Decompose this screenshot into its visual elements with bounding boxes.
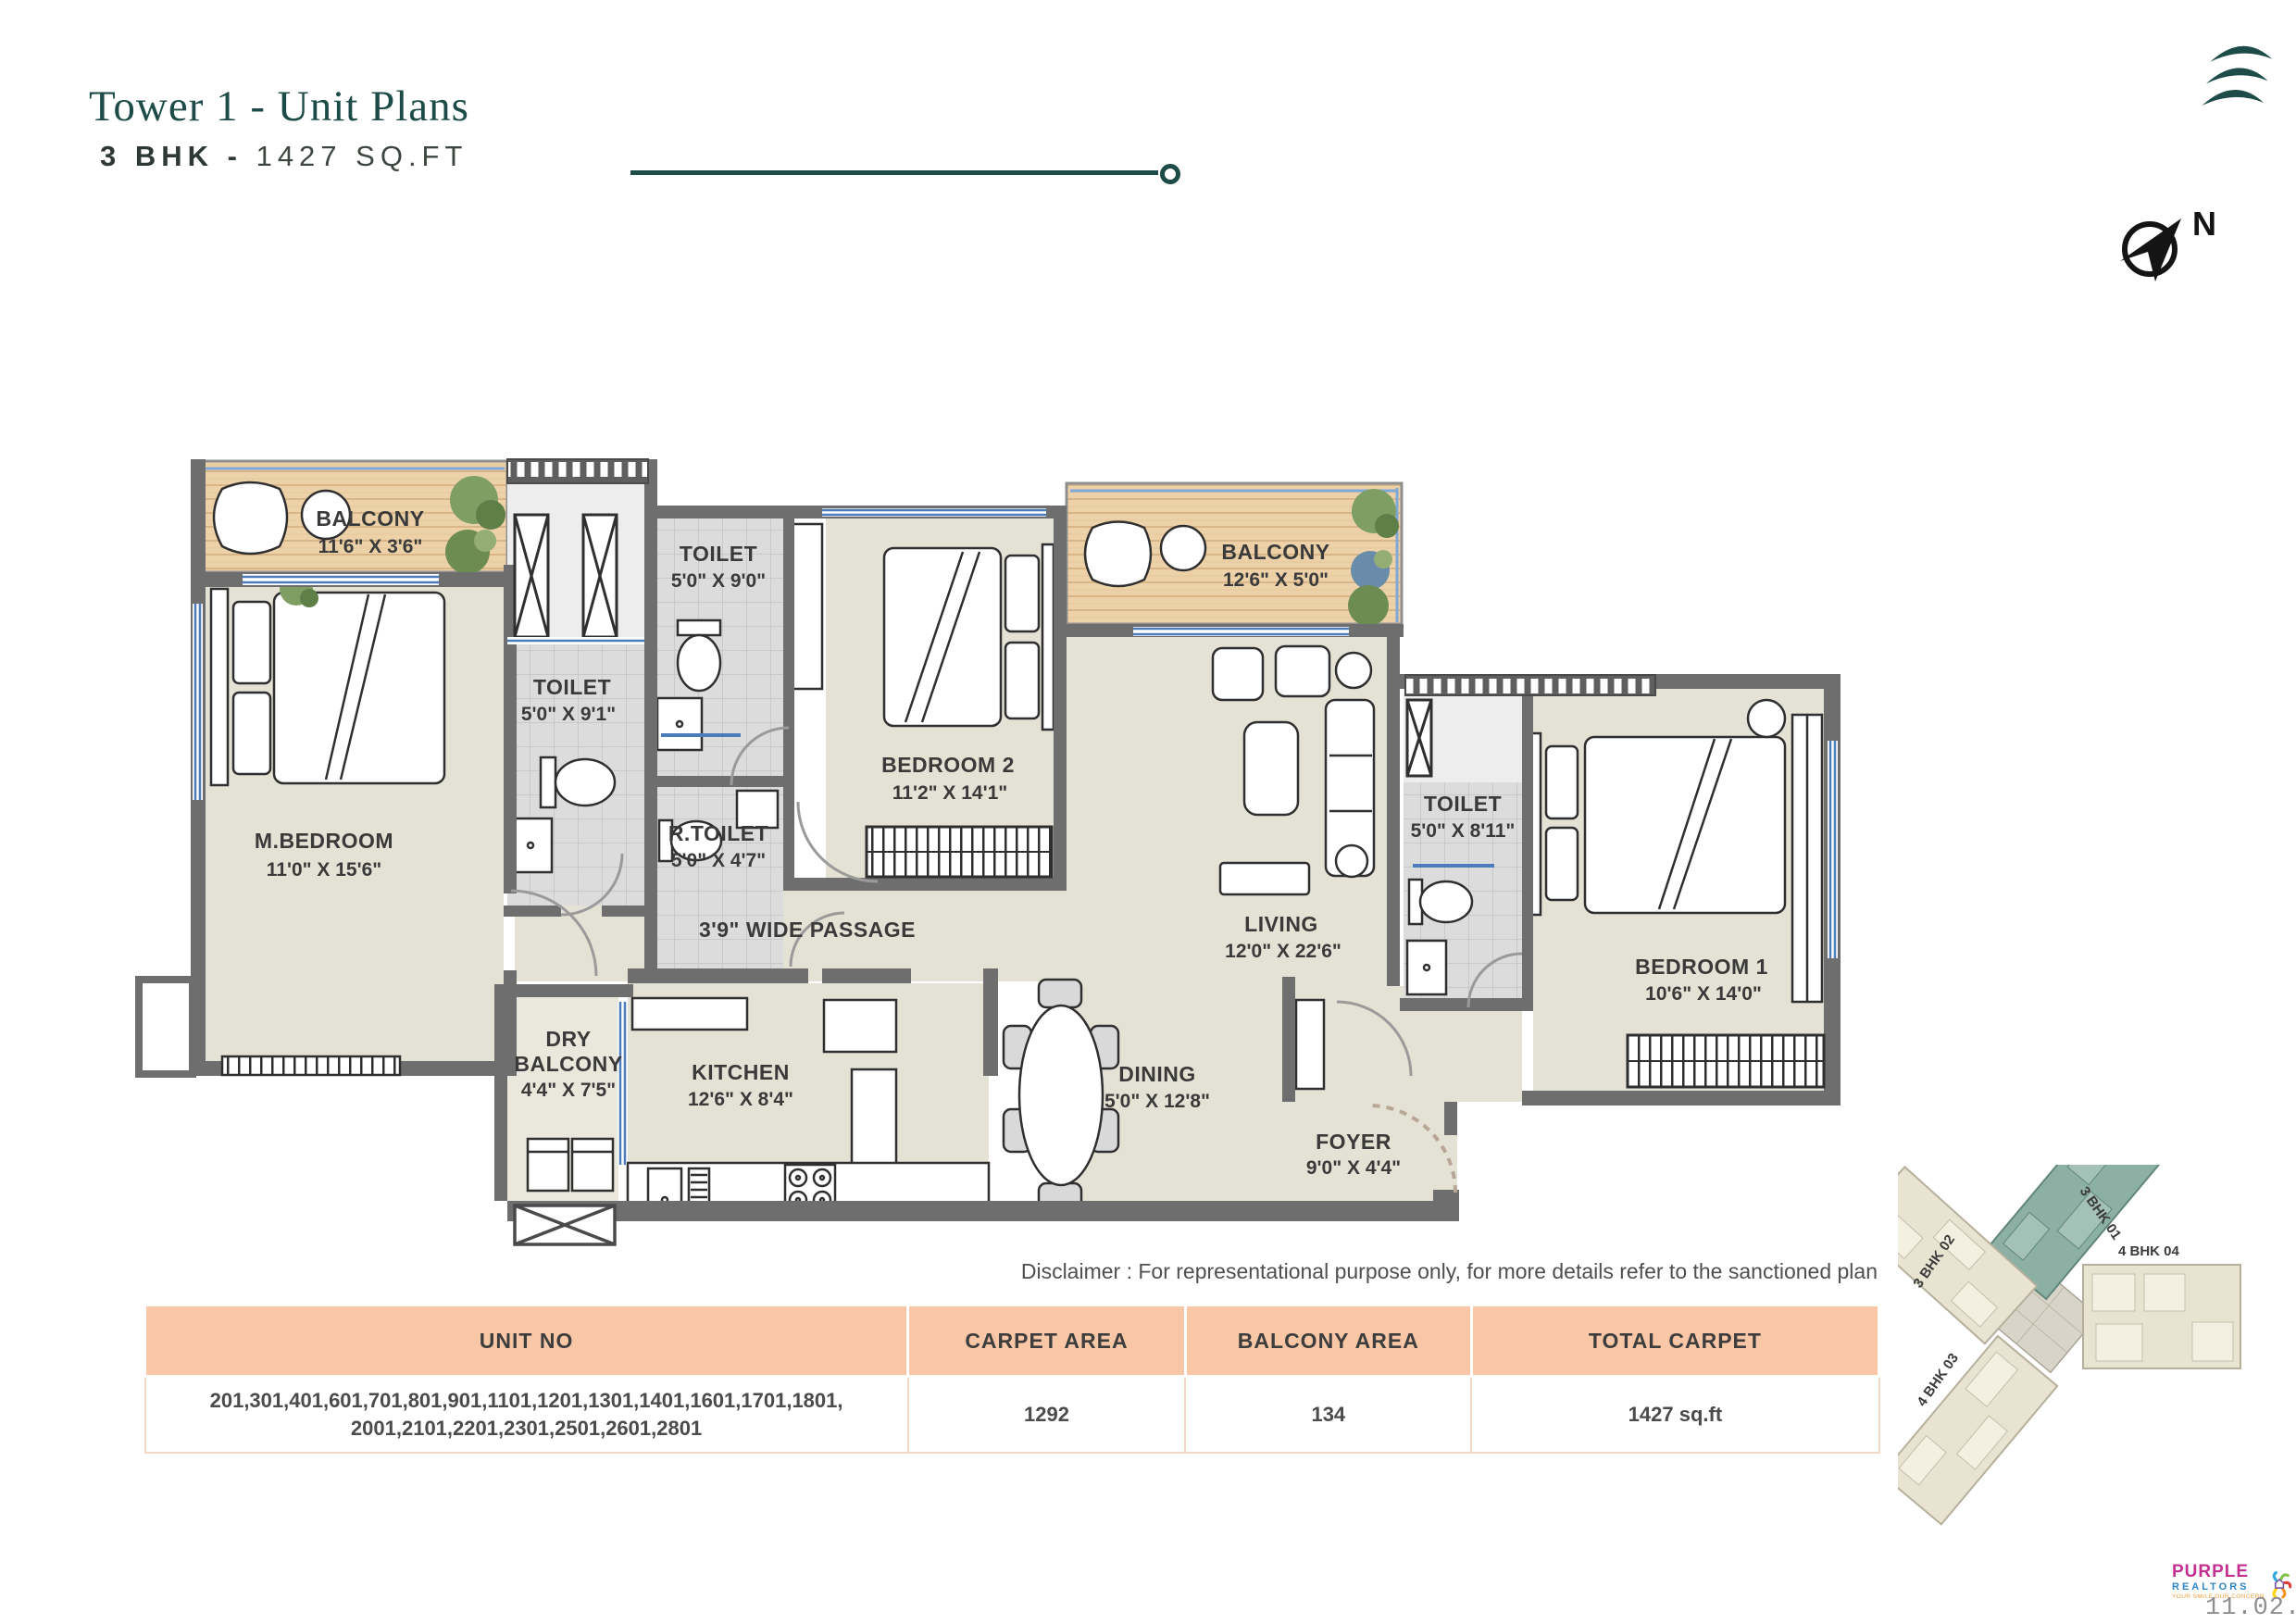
svg-text:BALCONY: BALCONY — [514, 1052, 622, 1076]
page: Tower 1 - Unit Plans 3 BHK - 1427 SQ.FT … — [0, 0, 2296, 1624]
left-niche — [139, 980, 193, 1074]
svg-text:5'0" X 4'7": 5'0" X 4'7" — [671, 850, 766, 871]
col-balcony-area: BALCONY AREA — [1185, 1305, 1471, 1377]
label-r-toilet: R.TOILET — [668, 821, 768, 845]
svg-text:9'0" X 4'4": 9'0" X 4'4" — [1306, 1157, 1401, 1179]
label-kitchen: KITCHEN — [692, 1060, 790, 1084]
svg-text:12'0" X 22'6": 12'0" X 22'6" — [1225, 941, 1341, 962]
svg-text:5'0" X 8'11": 5'0" X 8'11" — [1411, 820, 1516, 842]
keyplan-label-4bhk04: 4 BHK 04 — [2118, 1243, 2180, 1259]
col-total-carpet: TOTAL CARPET — [1471, 1305, 1878, 1377]
cell-balcony-area: 134 — [1185, 1377, 1471, 1454]
svg-text:11'0" X 15'6": 11'0" X 15'6" — [267, 859, 382, 881]
table-header-row: UNIT NO CARPET AREA BALCONY AREA TOTAL C… — [145, 1305, 1879, 1377]
col-unit-no: UNIT NO — [145, 1305, 908, 1377]
unit-area-table: UNIT NO CARPET AREA BALCONY AREA TOTAL C… — [143, 1304, 1880, 1454]
cell-total-carpet: 1427 sq.ft — [1471, 1377, 1878, 1454]
label-toilet-b: TOILET — [680, 542, 757, 566]
svg-text:12'6" X 5'0": 12'6" X 5'0" — [1223, 569, 1329, 591]
key-plan: 3 BHK 01 3 BHK 02 4 BHK 03 4 BHK 04 — [1898, 1165, 2296, 1563]
svg-text:12'6" X 8'4": 12'6" X 8'4" — [688, 1089, 793, 1110]
svg-text:10'6" X 14'0": 10'6" X 14'0" — [1645, 983, 1762, 1005]
svg-text:5'0" X 9'1": 5'0" X 9'1" — [521, 704, 616, 725]
svg-text:11'6" X 3'6": 11'6" X 3'6" — [318, 536, 423, 557]
bottom-duct — [515, 1206, 615, 1244]
svg-text:11'2" X 14'1": 11'2" X 14'1" — [892, 782, 1008, 804]
svg-text:5'0" X 9'0": 5'0" X 9'0" — [671, 570, 766, 592]
label-balcony1: BALCONY — [316, 506, 424, 531]
plan-date: 11.02.2026 — [2205, 1594, 2296, 1622]
keyplan-wing-3 — [1898, 1336, 2057, 1524]
label-bedroom2: BEDROOM 2 — [881, 753, 1015, 777]
label-toilet-a: TOILET — [533, 675, 611, 699]
label-passage: 3'9" WIDE PASSAGE — [699, 918, 916, 942]
label-living: LIVING — [1244, 912, 1318, 936]
table-row: 201,301,401,601,701,801,901,1101,1201,13… — [145, 1377, 1879, 1454]
col-carpet-area: CARPET AREA — [908, 1305, 1186, 1377]
realtor-name: PURPLE — [2172, 1563, 2265, 1580]
label-bedroom1: BEDROOM 1 — [1635, 955, 1768, 979]
label-dry-balcony: DRY — [545, 1027, 591, 1051]
label-mbedroom: M.BEDROOM — [255, 829, 393, 853]
svg-text:4'4" X 7'5": 4'4" X 7'5" — [521, 1080, 616, 1101]
cell-unit-no: 201,301,401,601,701,801,901,1101,1201,13… — [145, 1377, 908, 1454]
label-dining: DINING — [1118, 1062, 1196, 1086]
label-toilet-c: TOILET — [1424, 792, 1502, 816]
cell-carpet-area: 1292 — [908, 1377, 1186, 1454]
disclaimer-text: Disclaimer : For representational purpos… — [926, 1259, 1878, 1284]
foyer-cabinet — [1296, 1000, 1324, 1089]
label-balcony2: BALCONY — [1221, 540, 1329, 564]
keyplan-wing-4 — [2083, 1265, 2240, 1368]
label-foyer: FOYER — [1316, 1130, 1391, 1154]
svg-text:5'0" X 12'8": 5'0" X 12'8" — [1104, 1091, 1210, 1112]
